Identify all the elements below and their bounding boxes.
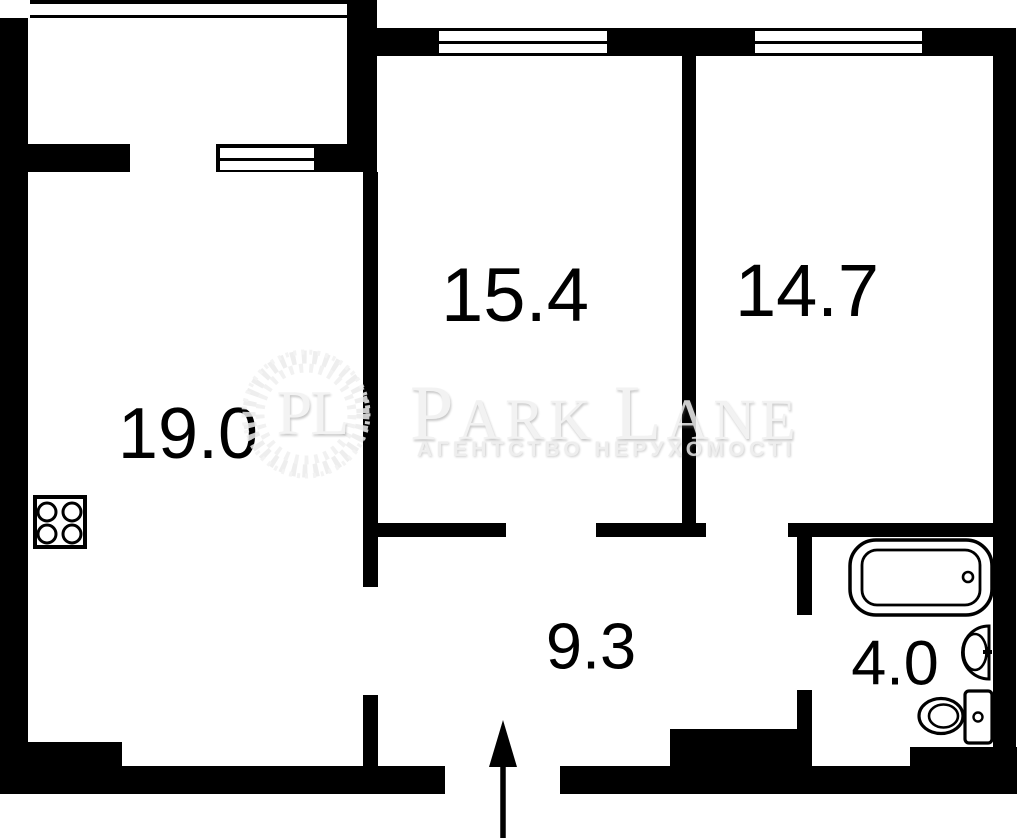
balcony-window-pane (220, 148, 314, 158)
watermark-brand-initial: L (614, 368, 667, 458)
wall-balcony-bottom-right (318, 144, 347, 172)
room-label-bedroom-1: 15.4 (441, 258, 589, 334)
watermark-subtitle: АГЕНТСТВО НЕРУХОМОСТІ (417, 438, 796, 462)
balcony-glazing-outer-line (30, 0, 347, 4)
watermark-monogram: PL (277, 376, 348, 450)
balcony-glazing-inner-line (30, 15, 347, 18)
wall-bottom-step-hallway (670, 729, 797, 766)
wall-bottom-right (560, 766, 1017, 794)
wall-hallway-top-right (596, 523, 706, 537)
wall-bottom-step-bathroom (910, 747, 1017, 766)
watermark-brand-text: ARK (458, 386, 595, 453)
sink-icon (955, 624, 993, 682)
wall-bathroom-left-upper (797, 523, 812, 615)
bedroom-2-window-pane (755, 44, 922, 53)
wall-left-exterior (0, 18, 28, 794)
wall-balcony-right (347, 0, 377, 172)
room-label-living: 19.0 (118, 398, 258, 470)
balcony-window-pane (220, 161, 314, 170)
floor-plan: 19.0 15.4 14.7 9.3 4.0 PL P ARK L ANE АГ… (0, 0, 1024, 838)
stove-icon (33, 495, 87, 549)
bedroom-2-window-pane (755, 31, 922, 41)
wall-living-room-right-upper (363, 172, 378, 587)
entrance-arrow-icon (486, 718, 520, 838)
bedroom-1-window-pane (439, 31, 607, 41)
wall-hallway-top-left (377, 523, 506, 537)
wall-balcony-bottom-left (28, 144, 130, 172)
wall-bottom-pier (28, 742, 122, 766)
bedroom-1-window-pane (439, 44, 607, 53)
room-label-bedroom-2: 14.7 (735, 254, 879, 328)
watermark-brand: P ARK L ANE (410, 368, 801, 458)
wall-right-exterior (993, 56, 1016, 794)
wall-bathroom-left-lower (797, 690, 812, 767)
wall-bottom-left (0, 766, 445, 794)
wall-bedrooms-divider (682, 56, 696, 523)
watermark-brand-initial: P (410, 368, 458, 458)
wall-bathroom-top (788, 523, 993, 537)
room-label-hallway: 9.3 (546, 614, 636, 679)
bathtub-icon (848, 538, 994, 617)
wall-living-room-right-lower (363, 695, 378, 767)
room-label-bathroom: 4.0 (851, 633, 939, 696)
